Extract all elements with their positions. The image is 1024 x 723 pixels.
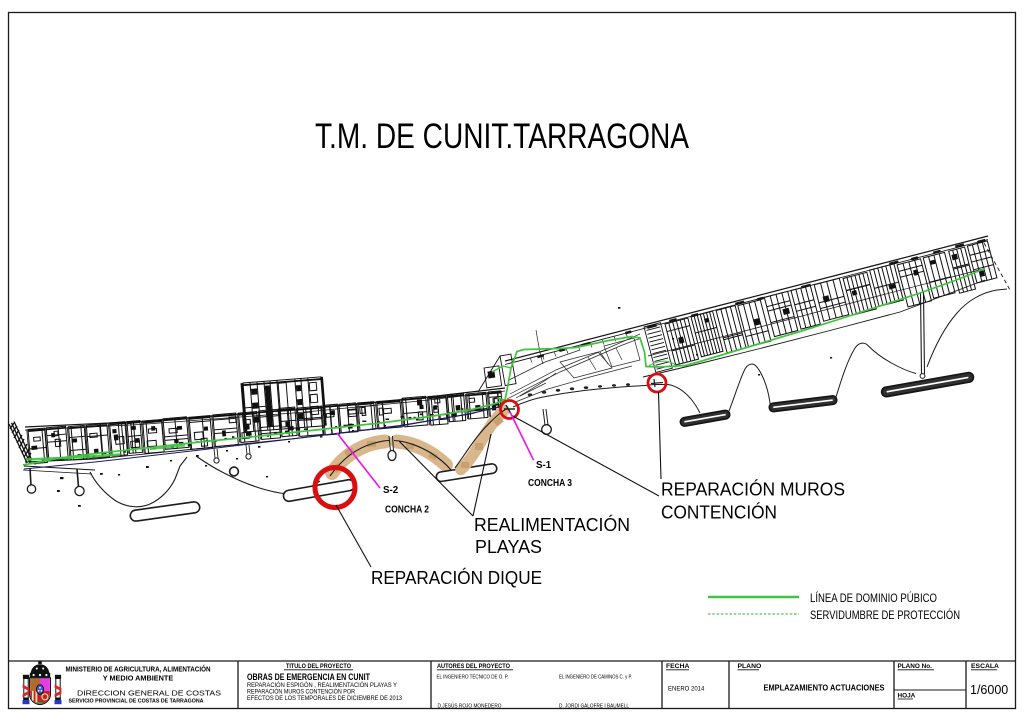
svg-text:SERVIDUMBRE DE PROTECCIÓN: SERVIDUMBRE DE PROTECCIÓN [810, 609, 960, 622]
svg-text:HOJA: HOJA [898, 693, 916, 700]
svg-text:CONCHA 3: CONCHA 3 [528, 478, 572, 489]
svg-text:S-1: S-1 [536, 460, 552, 471]
svg-text:PLAYAS: PLAYAS [475, 537, 542, 557]
svg-text:ENERO 2014: ENERO 2014 [668, 687, 705, 693]
svg-text:FECHA: FECHA [666, 663, 690, 670]
svg-text:ESCALA: ESCALA [971, 663, 999, 670]
svg-text:LÍNEA DE DOMINIO PÚBICO: LÍNEA DE DOMINIO PÚBICO [810, 592, 937, 605]
svg-text:OBRAS DE EMERGENCIA EN CUNIT: OBRAS DE EMERGENCIA EN CUNIT [247, 672, 370, 682]
svg-text:PLANO: PLANO [738, 663, 762, 670]
svg-text:D.JESÚS ROJO MONEDERO: D.JESÚS ROJO MONEDERO [438, 703, 502, 710]
svg-text:1/6000: 1/6000 [970, 683, 1008, 697]
svg-text:CONTENCIÓN: CONTENCIÓN [661, 502, 777, 523]
svg-text:SERVICIO PROVINCIAL DE COSTAS: SERVICIO PROVINCIAL DE COSTAS DE TARRAGO… [69, 699, 204, 705]
svg-text:Y MEDIO AMBIENTE: Y MEDIO AMBIENTE [103, 674, 174, 683]
svg-text:REALIMENTACIÓN: REALIMENTACIÓN [474, 514, 630, 535]
svg-text:T.M. DE CUNIT.TARRAGONA: T.M. DE CUNIT.TARRAGONA [315, 116, 689, 156]
svg-text:REPARACIÓN MUROS: REPARACIÓN MUROS [661, 479, 845, 500]
svg-text:MINISTERIO DE AGRICULTURA, ALI: MINISTERIO DE AGRICULTURA, ALIMENTACIÓN [66, 665, 211, 674]
svg-text:EL INGENIERO TÉCNICO DE O. P.: EL INGENIERO TÉCNICO DE O. P. [437, 674, 509, 681]
svg-text:EFECTOS DE LOS TEMPORALES DE D: EFECTOS DE LOS TEMPORALES DE DICIEMBRE D… [247, 695, 403, 702]
svg-text:EMPLAZAMIENTO ACTUACIONES: EMPLAZAMIENTO ACTUACIONES [764, 684, 885, 693]
svg-text:PLANO No.: PLANO No. [898, 663, 933, 670]
svg-text:D. JORDI GALOFRE I BAUMELL: D. JORDI GALOFRE I BAUMELL [559, 704, 629, 710]
svg-text:CONCHA 2: CONCHA 2 [385, 505, 429, 516]
svg-text:DIRECCION GENERAL DE COSTAS: DIRECCION GENERAL DE COSTAS [77, 691, 222, 698]
svg-text:S-2: S-2 [383, 485, 399, 496]
svg-text:TITULO DEL PROYECTO: TITULO DEL PROYECTO [286, 663, 351, 670]
svg-text:AUTORES DEL PROYECTO: AUTORES DEL PROYECTO [437, 663, 510, 670]
svg-text:REPARACIÓN DIQUE: REPARACIÓN DIQUE [371, 567, 542, 588]
svg-text:EL INGENIERO DE CAMINOS C. y P: EL INGENIERO DE CAMINOS C. y P. [559, 675, 632, 681]
